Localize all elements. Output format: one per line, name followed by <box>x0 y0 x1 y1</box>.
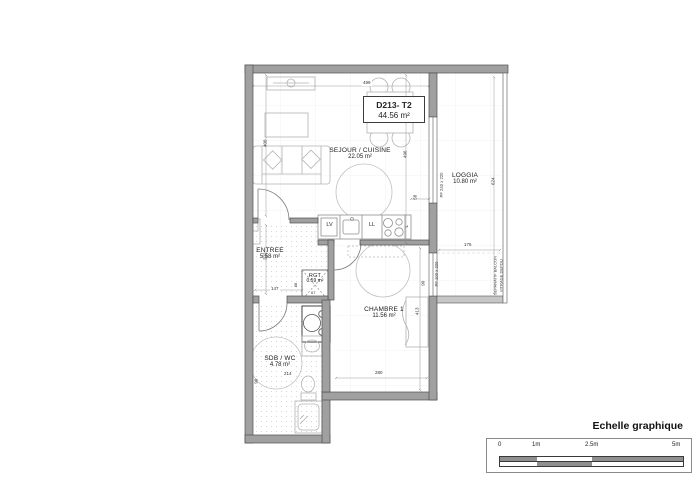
dim-chambre-width: 280 <box>374 371 384 376</box>
wall-entree-chambre <box>328 240 334 300</box>
dim-chambre-height: 413 <box>416 306 421 316</box>
fridge-label: L <box>405 221 410 231</box>
wall-top <box>245 65 508 73</box>
scale-bar-title: Echelle graphique <box>500 420 683 432</box>
scale-tick-25m: 2.5m <box>585 442 598 448</box>
scale-bar: 0 1m 2.5m 5m <box>486 438 692 473</box>
window-label-sejour: PF 240 x 220 <box>440 165 446 205</box>
wall-sejour-entree-l <box>253 218 258 223</box>
dim-entree-width: 147 <box>270 287 280 292</box>
scale-bar-strip <box>499 456 684 467</box>
wall-loggia-1 <box>429 73 437 117</box>
floor-plan-drawing <box>0 0 700 483</box>
room-label-rgt: RGT 0.59 m² <box>301 273 329 285</box>
dim-sdb-door: 90 <box>254 378 259 385</box>
scale-tick-1m: 1m <box>532 442 540 448</box>
wall-bottom-chambre <box>322 392 437 400</box>
apartment-code: D213- T2 <box>365 100 423 110</box>
wall-entree-sdb-l <box>253 296 259 303</box>
dim-sdb-width: 214 <box>283 372 293 377</box>
dim-entree-height: 222 <box>264 251 269 261</box>
dim-rgt-depth: 88 <box>294 282 298 288</box>
wall-sejour-entree-r <box>290 218 318 223</box>
room-label-sdb: SDB / WC 4.78 m² <box>252 355 308 369</box>
title-box: D213- T2 44.56 m² <box>363 96 425 123</box>
window-label-chambre: PF 100 x 220 <box>435 254 441 294</box>
separator-label-2: VITRAGE DEPOLI <box>500 250 505 302</box>
dim-sejour-right: 496 <box>404 149 409 159</box>
dishwasher-label: LV <box>321 223 338 229</box>
scale-tick-0: 0 <box>498 442 501 448</box>
dim-window-sill: 90 <box>421 280 426 287</box>
room-label-entree: ENTREE 5.58 m² <box>246 247 294 261</box>
washer-label: LL <box>363 223 381 229</box>
wall-right-chambre <box>429 296 437 400</box>
dim-counter-gap: 58 <box>413 194 418 201</box>
dim-sejour-top: 499 <box>362 81 372 86</box>
dim-rgt-width: 67 <box>310 291 316 295</box>
wall-loggia-2 <box>429 203 437 253</box>
scale-tick-5m: 5m <box>672 442 680 448</box>
dim-loggia-width: 175 <box>463 243 473 248</box>
window-sejour <box>429 117 437 203</box>
wall-sdb-right <box>322 300 330 392</box>
dim-sejour-left: 408 <box>264 138 269 148</box>
wall-kitchen-r <box>360 240 429 245</box>
room-label-chambre: CHAMBRE 1 11.56 m² <box>353 306 415 320</box>
dim-loggia-height: 624 <box>492 176 497 186</box>
wall-bottom-sdb <box>245 435 330 443</box>
floor-plan-page: D213- T2 44.56 m² SEJOUR / CUISINE 22.05… <box>0 0 700 483</box>
apartment-area: 44.56 m² <box>365 111 423 120</box>
room-label-sejour: SEJOUR / CUISINE 22.05 m² <box>314 147 406 161</box>
